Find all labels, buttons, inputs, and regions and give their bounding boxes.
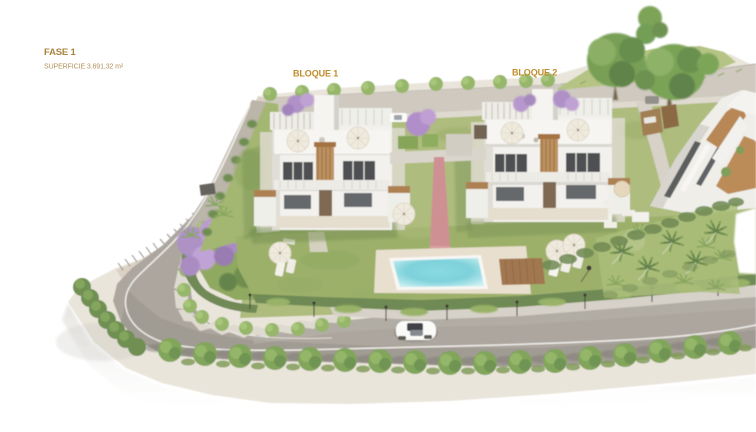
svg-text:BLOQUE 2: BLOQUE 2: [512, 68, 557, 78]
svg-text:BLOQUE 1: BLOQUE 1: [293, 69, 338, 79]
svg-text:SUPERFICIE 3.691,32 m²: SUPERFICIE 3.691,32 m²: [44, 64, 124, 71]
svg-text:FASE 1: FASE 1: [44, 47, 76, 58]
